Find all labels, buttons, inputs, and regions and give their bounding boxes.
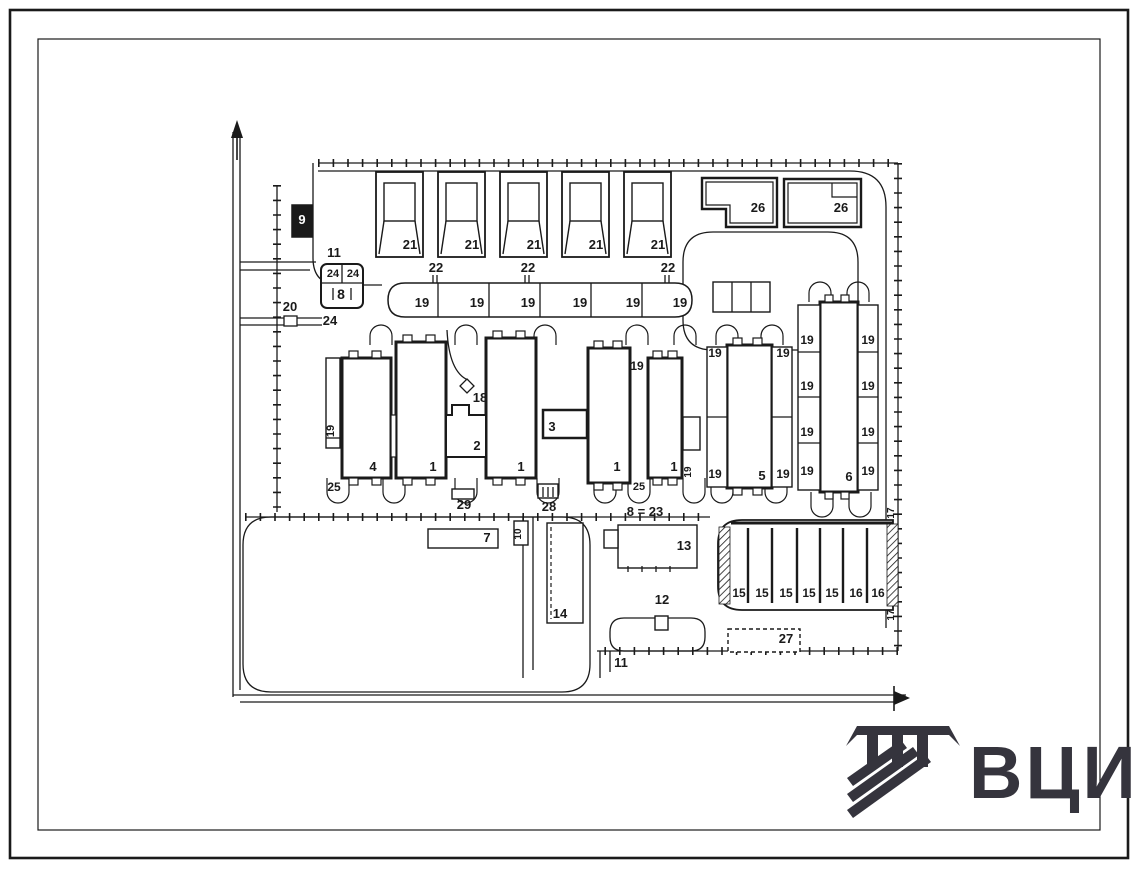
entrance-stub [594, 341, 603, 348]
plan-label-10: 10 [513, 528, 524, 540]
plan-label-1: 1 [613, 459, 620, 474]
plan-label-24: 24 [323, 313, 338, 328]
plan-label-27: 27 [779, 631, 793, 646]
plan-label-25: 25 [633, 481, 645, 493]
building-26b [784, 179, 861, 227]
plan-label-6: 6 [845, 469, 852, 484]
entrance-stub [372, 351, 381, 358]
plan-label-21: 21 [589, 237, 603, 252]
plan-label-13: 13 [677, 538, 691, 553]
entrance-stub [653, 478, 662, 485]
building-1a [396, 342, 446, 478]
plan-label-29: 29 [457, 497, 471, 512]
plan-label-21: 21 [651, 237, 665, 252]
plan-label-15: 15 [802, 586, 816, 600]
plan-label-11: 11 [614, 655, 628, 670]
drawing-sheet: 9112424820242121212121262622222219191919… [0, 0, 1139, 869]
plan-label-19: 19 [861, 425, 875, 439]
cells-3bay [713, 282, 770, 312]
emblem-flare [846, 726, 857, 746]
site-plan-svg: 9112424820242121212121262622222219191919… [0, 0, 1139, 869]
plan-label-19: 19 [470, 295, 484, 310]
plan-label-16: 16 [849, 586, 863, 600]
entrance-stub [841, 295, 849, 302]
entrance-stub [372, 478, 381, 485]
plan-label-17: 17 [886, 507, 897, 519]
entrance-stub [426, 478, 435, 485]
building-1c [588, 348, 630, 483]
connector-ab [391, 415, 396, 457]
entrance-stub [733, 338, 742, 345]
parking-hatch-left [719, 527, 730, 604]
road-loop [849, 492, 871, 517]
plan-label-21: 21 [403, 237, 417, 252]
entrance-stub [668, 351, 677, 358]
plan-label-9: 9 [298, 212, 305, 227]
emblem-bar [857, 726, 949, 735]
vcis-logo-emblem-icon [846, 726, 960, 818]
plan-label-2: 2 [473, 438, 480, 453]
entrance-stub [493, 331, 502, 338]
plan-label-19: 19 [673, 295, 687, 310]
plan-label-11: 11 [327, 245, 341, 260]
entrance-stub [653, 351, 662, 358]
plan-label-15: 15 [755, 586, 769, 600]
entrance-stub [668, 478, 677, 485]
plan-label-25: 25 [327, 480, 341, 494]
vcis-logo-text: ВЦИС [969, 731, 1139, 814]
plan-label-19: 19 [861, 379, 875, 393]
road-loop [683, 478, 705, 503]
entrance-stub [516, 478, 525, 485]
plan-label-16: 16 [871, 586, 885, 600]
plan-label-21: 21 [527, 237, 541, 252]
plan-label-18: 18 [473, 390, 487, 405]
plan-label-15: 15 [825, 586, 839, 600]
road-loop [455, 325, 477, 345]
plan-label-26: 26 [751, 200, 765, 215]
plan-label-19: 19 [630, 359, 644, 373]
entrance-stub [594, 483, 603, 490]
plan-label-1: 1 [429, 459, 436, 474]
plan-label-19: 19 [861, 464, 875, 478]
plan-label-19: 19 [521, 295, 535, 310]
plan-label-8: 8 [337, 286, 345, 302]
plan-label-22: 22 [521, 260, 535, 275]
building-4 [342, 358, 391, 478]
plan-label-8=23: 8 = 23 [627, 504, 664, 519]
road-loop [370, 325, 392, 345]
plan-label-19: 19 [683, 466, 694, 478]
entrance-stub [493, 478, 502, 485]
annex-e [683, 417, 700, 450]
plan-label-7: 7 [483, 530, 490, 545]
entrance-stub [753, 338, 762, 345]
emblem-flare [949, 726, 960, 746]
plan-label-14: 14 [553, 606, 568, 621]
building-26a [702, 178, 777, 227]
road-line [447, 330, 468, 380]
plan-label-19: 19 [776, 467, 790, 481]
entrance-stub [349, 351, 358, 358]
plan-label-20: 20 [283, 299, 297, 314]
entrance-stub [403, 478, 412, 485]
entrance-stub [825, 295, 833, 302]
plan-label-26: 26 [834, 200, 848, 215]
entrance-stub [613, 341, 622, 348]
plan-label-22: 22 [661, 260, 675, 275]
exit-arrow-head [894, 691, 910, 705]
plan-label-19: 19 [708, 346, 722, 360]
plan-label-12: 12 [655, 592, 669, 607]
north-arrow-head [231, 120, 243, 138]
road-loop [383, 478, 405, 503]
entrance-stub [841, 492, 849, 499]
plan-label-19: 19 [573, 295, 587, 310]
plan-label-19: 19 [626, 295, 640, 310]
entrance-stub [426, 335, 435, 342]
entrance-stub [403, 335, 412, 342]
plan-label-1: 1 [517, 459, 524, 474]
plan-label-19: 19 [800, 425, 814, 439]
plan-label-19: 19 [776, 346, 790, 360]
entrance-stub [733, 488, 742, 495]
building-1b [486, 338, 536, 478]
structure-13-annex [604, 530, 618, 548]
entrance-stub [825, 492, 833, 499]
plan-label-17: 17 [886, 609, 897, 621]
plan-label-15: 15 [779, 586, 793, 600]
plan-label-15: 15 [732, 586, 746, 600]
plan-label-19: 19 [415, 295, 429, 310]
entrance-stub [349, 478, 358, 485]
entrance-stub [613, 483, 622, 490]
entrance-stub [516, 331, 525, 338]
entrance-stub [753, 488, 762, 495]
plan-label-4: 4 [369, 459, 377, 474]
vcis-logo: ВЦИС [846, 726, 1139, 818]
plan-label-5: 5 [758, 468, 765, 483]
building-6 [820, 302, 858, 492]
plan-label-22: 22 [429, 260, 443, 275]
plan-label-19: 19 [800, 379, 814, 393]
plan-label-24: 24 [327, 268, 340, 280]
road-loop [761, 325, 783, 345]
plan-label-19: 19 [800, 464, 814, 478]
plan-label-19: 19 [708, 467, 722, 481]
parking-hatch-right [887, 524, 898, 606]
road-loop [626, 325, 648, 345]
structure-12 [655, 616, 668, 630]
plan-label-1: 1 [670, 459, 677, 474]
building-5 [727, 345, 772, 488]
plan-label-19: 19 [861, 333, 875, 347]
plan-label-3: 3 [548, 419, 555, 434]
road-line [243, 517, 590, 692]
gate-20 [284, 316, 297, 326]
plan-label-24: 24 [347, 268, 360, 280]
plan-label-21: 21 [465, 237, 479, 252]
plan-label-19: 19 [800, 333, 814, 347]
plan-label-19: 19 [325, 425, 337, 437]
plan-label-28: 28 [542, 499, 556, 514]
